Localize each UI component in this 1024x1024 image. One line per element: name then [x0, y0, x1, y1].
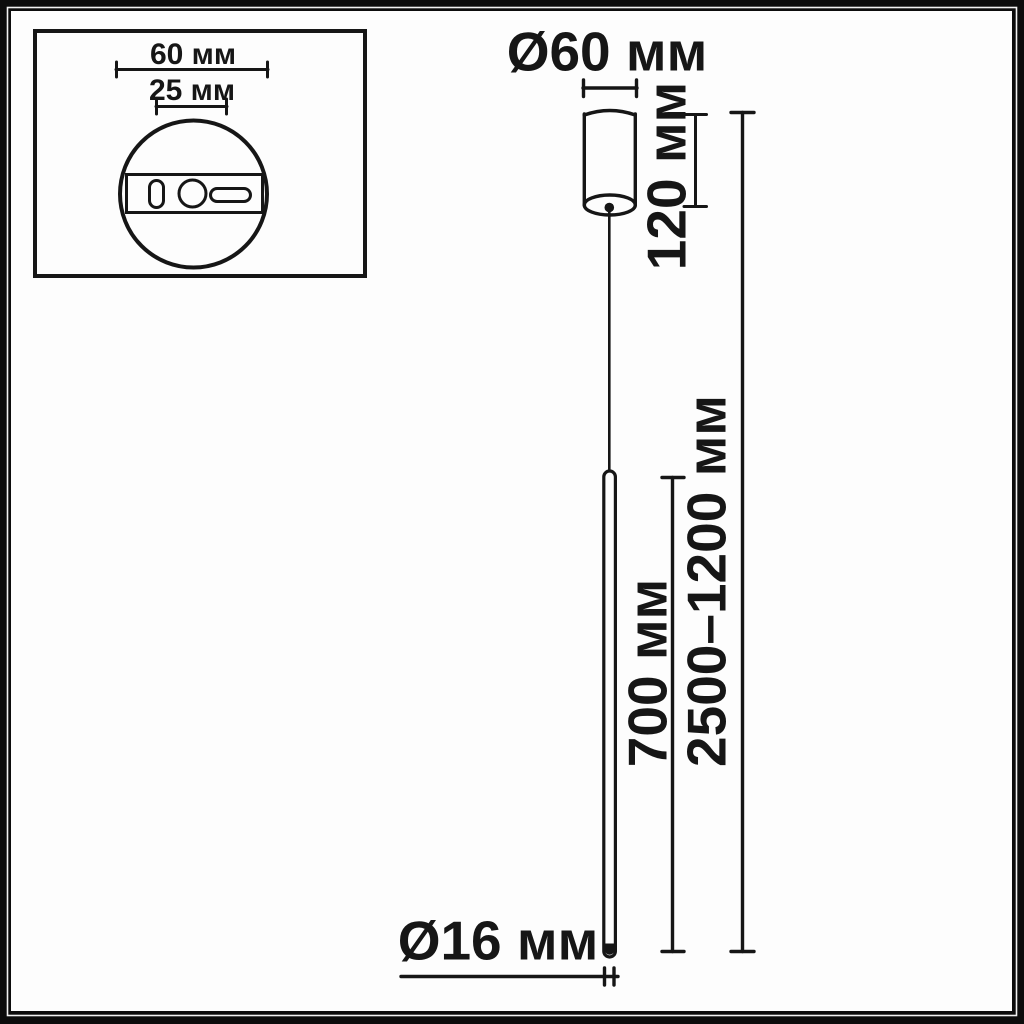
inset-mount-dim-label: 25 мм: [149, 76, 235, 106]
suspension-height-label: 2500–1200 мм: [680, 395, 735, 767]
lamp-length-label: 700 мм: [621, 579, 676, 767]
rod-diameter-label: Ø16 мм: [398, 914, 599, 969]
diagram-canvas: 60 мм 25 мм Ø60 мм 120 мм 700 мм 2500–12…: [0, 0, 1024, 1024]
linework: [0, 0, 1024, 1024]
inset-width-dim-label: 60 мм: [150, 40, 236, 70]
lamp-rod: [604, 471, 616, 957]
canopy-height-label: 120 мм: [640, 82, 695, 270]
canopy-diameter-label: Ø60 мм: [507, 25, 708, 80]
lamp-rod-tip: [604, 944, 614, 955]
